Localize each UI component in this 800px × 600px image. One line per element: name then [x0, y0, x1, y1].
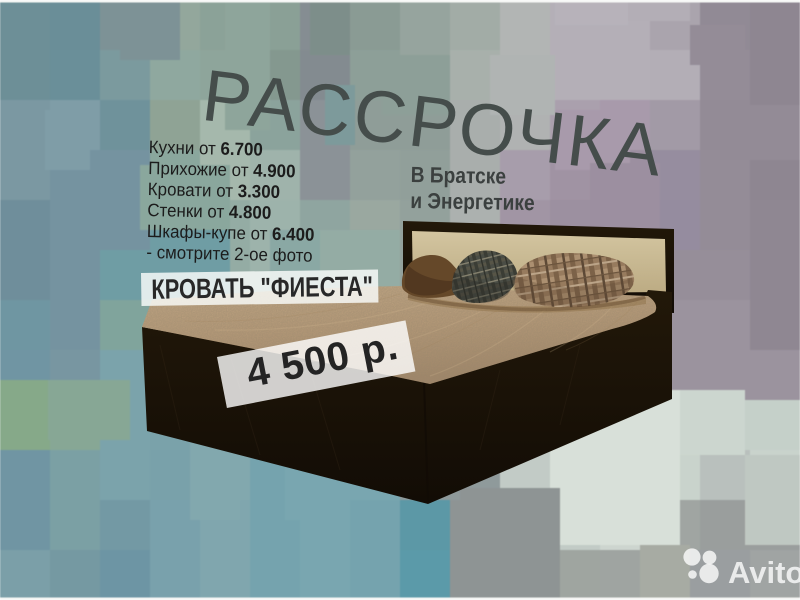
svg-text:Avito: Avito: [728, 555, 800, 590]
